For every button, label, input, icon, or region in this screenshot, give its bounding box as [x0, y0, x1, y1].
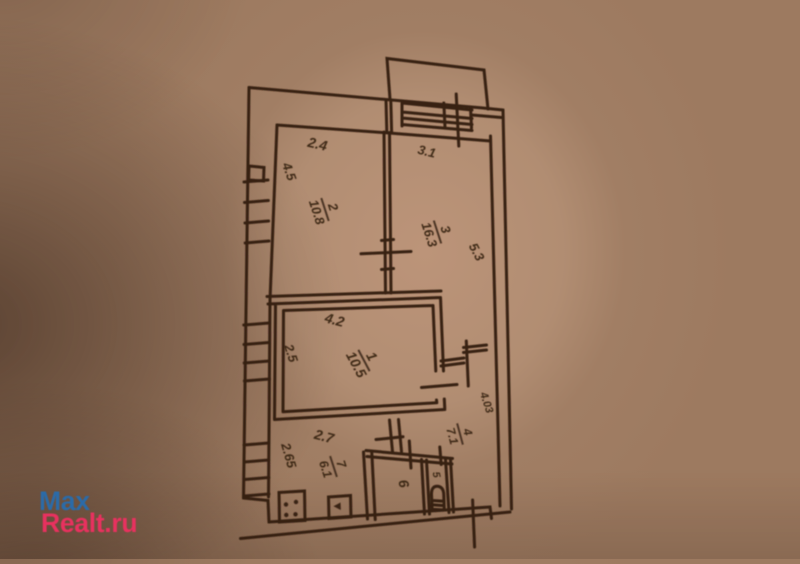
svg-text:6: 6	[395, 478, 412, 489]
svg-text:3.1: 3.1	[416, 142, 437, 161]
svg-text:5.3: 5.3	[466, 240, 488, 264]
svg-text:4.03: 4.03	[477, 390, 495, 415]
svg-text:10.8: 10.8	[306, 198, 328, 227]
svg-text:3: 3	[437, 224, 454, 236]
svg-text:1: 1	[363, 349, 381, 364]
svg-text:4.5: 4.5	[279, 159, 300, 183]
svg-text:5: 5	[430, 471, 443, 479]
svg-text:7: 7	[333, 459, 349, 471]
svg-text:4.2: 4.2	[322, 309, 346, 330]
svg-text:2.7: 2.7	[312, 426, 337, 447]
svg-text:10.5: 10.5	[343, 349, 370, 381]
svg-text:4: 4	[460, 426, 476, 437]
svg-text:2.4: 2.4	[305, 134, 329, 154]
svg-text:2.65: 2.65	[278, 440, 300, 470]
svg-text:16.3: 16.3	[418, 220, 440, 249]
svg-text:2: 2	[325, 200, 342, 213]
svg-text:7.1: 7.1	[443, 426, 461, 446]
